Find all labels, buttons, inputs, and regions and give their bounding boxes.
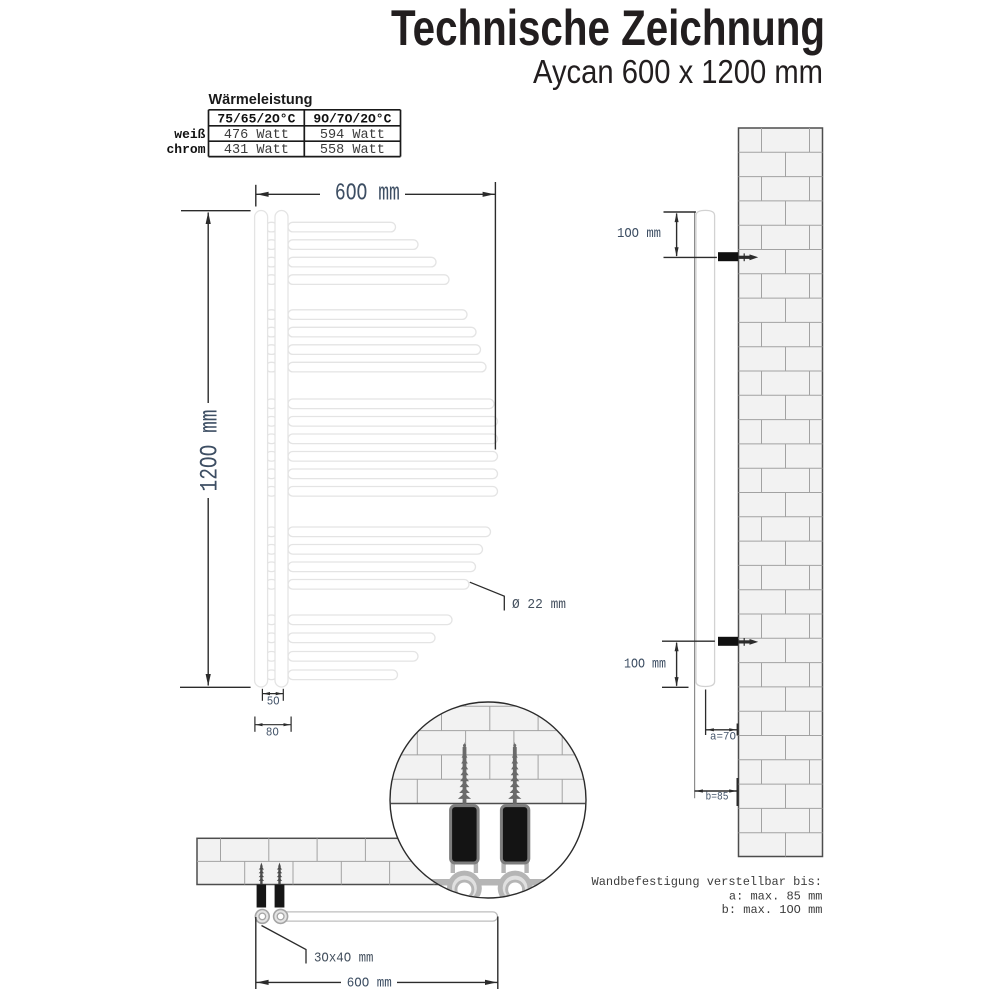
svg-text:Wandbefestigung verstellbar bi: Wandbefestigung verstellbar bis: xyxy=(592,875,822,889)
svg-text:3Ox4O mm: 3Ox4O mm xyxy=(314,952,374,967)
svg-text:12OO mm: 12OO mm xyxy=(196,410,225,492)
svg-text:a: max. 85 mm: a: max. 85 mm xyxy=(729,890,823,904)
svg-text:6OO mm: 6OO mm xyxy=(347,976,392,991)
svg-text:9O/7O/2O°C: 9O/7O/2O°C xyxy=(313,111,391,126)
svg-text:558 Watt: 558 Watt xyxy=(320,143,385,158)
svg-text:8O: 8O xyxy=(266,726,279,740)
svg-text:a=7O: a=7O xyxy=(710,731,736,743)
svg-text:Wärmeleistung: Wärmeleistung xyxy=(209,92,313,108)
svg-text:Technische Zeichnung: Technische Zeichnung xyxy=(391,0,825,56)
svg-text:b: max. 1OO mm: b: max. 1OO mm xyxy=(722,903,823,917)
svg-text:6OO mm: 6OO mm xyxy=(335,181,400,208)
svg-text:chrom: chrom xyxy=(166,142,205,157)
svg-text:594 Watt: 594 Watt xyxy=(320,128,385,143)
svg-text:1OO mm: 1OO mm xyxy=(617,227,661,242)
svg-text:75/65/2O°C: 75/65/2O°C xyxy=(217,111,295,126)
svg-text:b=85: b=85 xyxy=(706,792,729,804)
svg-text:Aycan 600 x 1200 mm: Aycan 600 x 1200 mm xyxy=(533,54,823,91)
svg-text:5O: 5O xyxy=(267,695,280,709)
svg-text:431 Watt: 431 Watt xyxy=(224,143,289,158)
svg-text:476 Watt: 476 Watt xyxy=(224,128,289,143)
svg-text:weiß: weiß xyxy=(174,127,205,142)
svg-text:1OO mm: 1OO mm xyxy=(624,658,666,673)
svg-text:Ø 22 mm: Ø 22 mm xyxy=(512,598,566,613)
